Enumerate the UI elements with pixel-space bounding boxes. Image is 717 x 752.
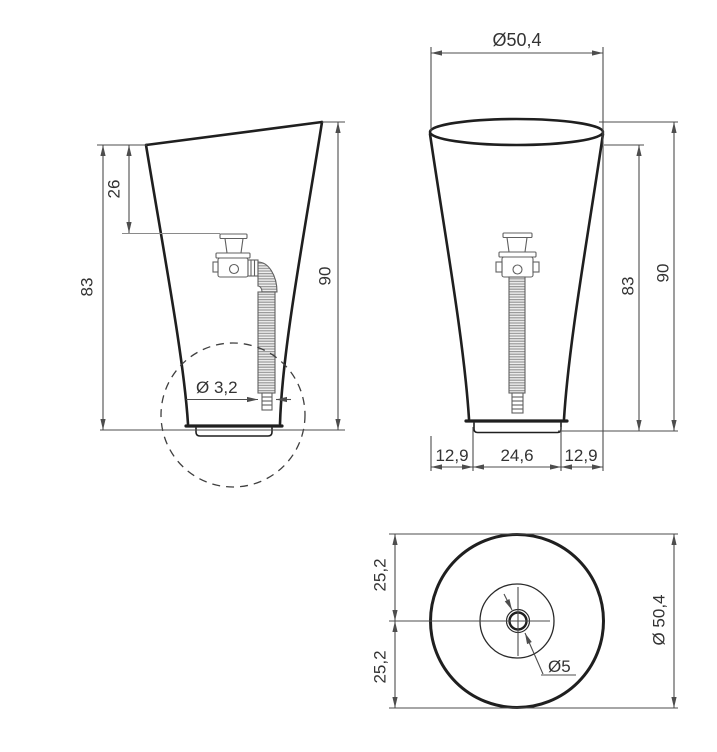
base-plinth bbox=[196, 428, 272, 436]
rim-ellipse bbox=[430, 119, 603, 145]
side-view: 83 26 90 Ø 3,2 bbox=[78, 122, 346, 487]
corrugated-hose-side bbox=[258, 262, 277, 410]
front-view: Ø50,4 83 90 12,9 24,6 12,9 bbox=[430, 30, 678, 471]
dim-label-top-diameter: Ø50,4 bbox=[492, 30, 541, 50]
drain-tab-right bbox=[533, 262, 539, 272]
dim-label-height-front: 83 bbox=[619, 277, 638, 296]
drain-assembly-front bbox=[496, 233, 539, 277]
dim-label-height-total: 90 bbox=[654, 264, 673, 283]
hose-coupler bbox=[248, 260, 258, 276]
rim-edge bbox=[146, 122, 322, 145]
base-plinth bbox=[474, 423, 561, 433]
drain-flange bbox=[503, 233, 532, 238]
right-edge bbox=[564, 134, 603, 419]
drain-plate bbox=[499, 252, 536, 257]
drain-flange bbox=[220, 234, 247, 239]
dim-label-base-width: 24,6 bbox=[500, 446, 533, 465]
dim-label-drain-diameter: Ø5 bbox=[548, 657, 571, 676]
dim-label-pipe-diameter: Ø 3,2 bbox=[196, 378, 238, 397]
front-edge bbox=[146, 145, 188, 424]
drain-assembly-side bbox=[213, 234, 258, 277]
drain-neck bbox=[225, 239, 243, 254]
dim-label-offset-upper: 25,2 bbox=[371, 558, 390, 591]
leader-arrow-opposite bbox=[504, 594, 512, 610]
drain-plate bbox=[216, 253, 250, 258]
corrugated-hose-front bbox=[509, 277, 525, 413]
dim-label-height-front: 83 bbox=[78, 278, 97, 297]
dim-label-height-total: 90 bbox=[316, 267, 335, 286]
top-view: 25,2 25,2 Ø 50,4 Ø5 bbox=[371, 534, 679, 708]
drain-screw bbox=[513, 265, 522, 274]
hose-vertical bbox=[509, 277, 525, 393]
drain-screw bbox=[230, 265, 239, 274]
technical-drawing-canvas: 83 26 90 Ø 3,2 bbox=[0, 0, 717, 752]
dim-label-outer-diameter: Ø 50,4 bbox=[650, 594, 669, 645]
technical-drawing-page: 83 26 90 Ø 3,2 bbox=[0, 0, 717, 752]
drain-neck bbox=[507, 238, 527, 253]
dim-label-base-left: 12,9 bbox=[435, 446, 468, 465]
drain-tab-left bbox=[213, 262, 218, 272]
hose-elbow bbox=[258, 262, 277, 292]
dim-label-offset-lower: 25,2 bbox=[371, 650, 390, 683]
dim-label-base-right: 12,9 bbox=[564, 446, 597, 465]
hose-tip bbox=[512, 393, 523, 413]
drain-tab-left bbox=[496, 262, 502, 272]
dim-label-rim-to-drain: 26 bbox=[105, 180, 124, 199]
hose-vertical bbox=[258, 292, 275, 393]
leader-drain-diameter bbox=[525, 633, 543, 674]
top-view-dimensions bbox=[389, 534, 678, 708]
left-edge bbox=[430, 134, 469, 419]
